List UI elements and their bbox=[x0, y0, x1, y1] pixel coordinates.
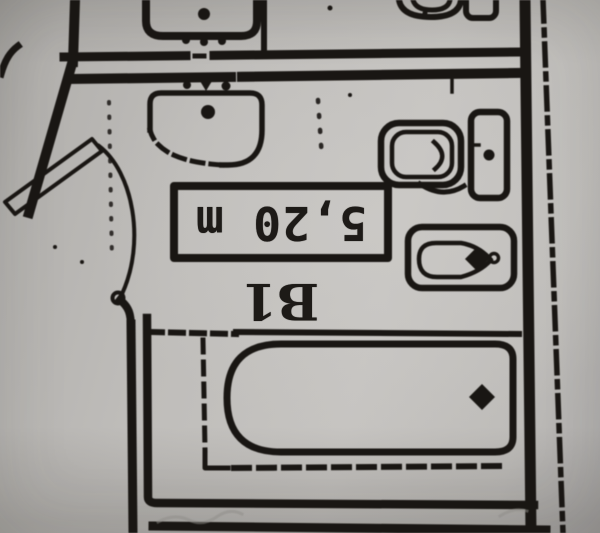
right-wall bbox=[525, 0, 531, 533]
floor-plan-scan: 5,20 m B1 bbox=[0, 0, 600, 533]
toilet bbox=[381, 123, 464, 192]
upper-cistern-icon bbox=[466, 0, 496, 18]
tub-alcove bbox=[150, 332, 519, 468]
smudge-artifacts bbox=[158, 510, 527, 523]
plumbing-dotted-line bbox=[318, 80, 452, 158]
tub-drain bbox=[469, 384, 495, 410]
bidet bbox=[408, 227, 514, 288]
door-swing-arc bbox=[99, 146, 134, 294]
area-label: 5,20 m bbox=[179, 196, 383, 250]
door-leaf bbox=[5, 139, 102, 214]
toilet-cistern bbox=[471, 112, 507, 198]
top-wall bbox=[64, 52, 519, 79]
section-line bbox=[543, 0, 563, 533]
bottom-wall bbox=[131, 318, 546, 533]
room-label: B1 bbox=[249, 279, 319, 324]
bathtub bbox=[227, 344, 513, 452]
basin-drain bbox=[201, 105, 215, 119]
entry-door bbox=[1, 46, 134, 328]
washbasin bbox=[150, 81, 262, 165]
plan-linework bbox=[0, 0, 600, 533]
